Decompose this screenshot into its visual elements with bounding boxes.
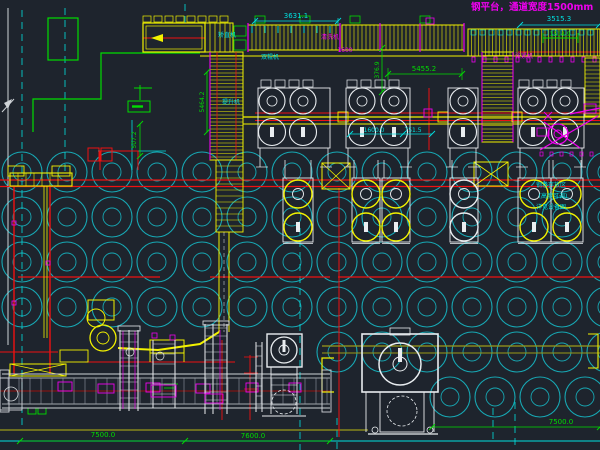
drawing-title: 钢平台，通道宽度1500mm <box>471 1 593 13</box>
dim-5455: 5455.2 <box>412 65 437 73</box>
cad-rect <box>392 127 396 137</box>
label-tishengji: 提升机 <box>222 98 240 106</box>
cad-rect <box>462 222 466 232</box>
label-qingxiji: 清洗机 <box>321 33 339 41</box>
cad-rect <box>301 127 305 137</box>
dim-507: 507.2 <box>131 131 138 148</box>
cad-rect <box>461 127 465 137</box>
cad-rect <box>532 222 536 232</box>
dim-3631: 3631.1 <box>284 12 309 20</box>
label-shuanggunji: 双辊机 <box>261 53 279 61</box>
dim-1514: 1514.9 <box>550 31 571 38</box>
note-line-2: (高度可调) <box>539 192 568 200</box>
cad-rect <box>394 222 398 232</box>
dim-751: 751.5 <box>404 127 421 134</box>
cad-viewport: 钢平台，通道宽度1500mm3631.13515.31514.95455.237… <box>0 0 600 450</box>
note-line-1: 钢卷存放区 <box>536 181 566 189</box>
label-zhangjinji: 张紧机 <box>515 52 533 60</box>
dim-3515: 3515.3 <box>547 15 572 23</box>
cad-rect <box>283 340 286 352</box>
cad-rect <box>565 222 569 232</box>
cad-drawing-canvas[interactable]: 钢平台，通道宽度1500mm3631.13515.31514.95455.237… <box>0 0 600 450</box>
dim-5464: 5464.2 <box>199 91 206 112</box>
label-1600: 1600 <box>337 47 352 54</box>
dim-7500-right: 7500.0 <box>549 418 574 426</box>
dim-7500-left: 7500.0 <box>91 431 116 439</box>
cad-rect <box>531 127 535 137</box>
cad-rect <box>398 348 402 362</box>
dim-1600: 1600.0 <box>364 127 385 134</box>
note-line-3: 详见设备图 <box>536 203 566 211</box>
cad-rect <box>270 127 274 137</box>
cad-rect <box>364 222 368 232</box>
dim-7600-mid: 7600.0 <box>241 432 266 440</box>
cad-rect <box>296 222 300 232</box>
dim-376: 376.9 <box>374 61 381 78</box>
label-jiaozhiji: 矫直机 <box>218 31 236 39</box>
